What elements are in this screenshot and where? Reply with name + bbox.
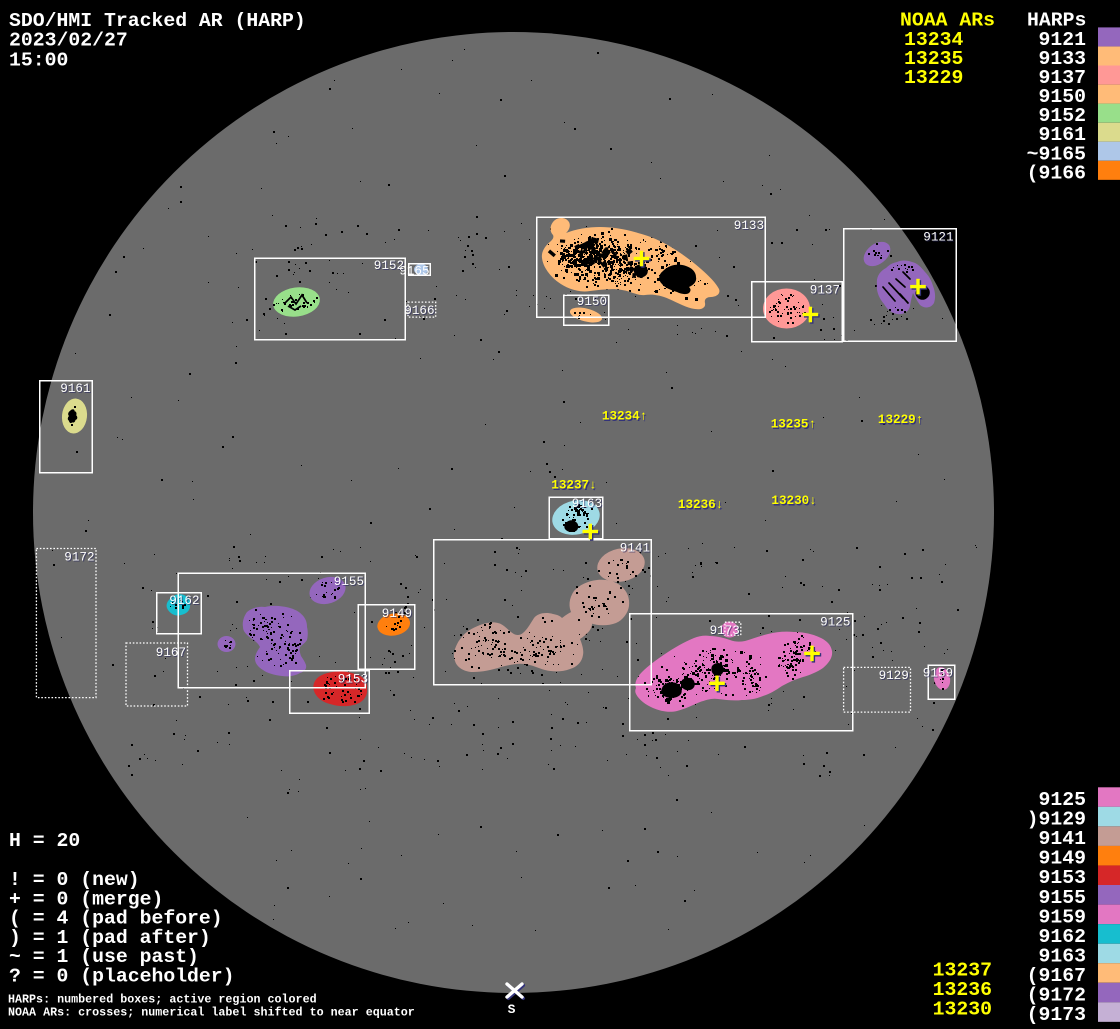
svg-text:S: S (508, 1002, 516, 1017)
svg-text:9153: 9153 (338, 673, 368, 687)
svg-text:9155: 9155 (334, 575, 364, 589)
svg-text:9162: 9162 (169, 594, 199, 608)
svg-text:13234↑: 13234↑ (602, 410, 647, 424)
svg-text:NOAA ARs: crosses; numerical l: NOAA ARs: crosses; numerical label shift… (8, 1006, 415, 1020)
svg-text:13237↓: 13237↓ (551, 479, 596, 493)
svg-text:9163: 9163 (572, 497, 602, 511)
svg-text:13230: 13230 (933, 999, 992, 1021)
svg-text:13235↑: 13235↑ (771, 418, 816, 432)
svg-text:13229↑: 13229↑ (878, 413, 923, 427)
svg-text:9173: 9173 (710, 624, 740, 638)
svg-text:13230↓: 13230↓ (771, 494, 816, 508)
svg-text:9137: 9137 (810, 284, 840, 298)
svg-text:9159: 9159 (923, 667, 953, 681)
svg-text:9125: 9125 (820, 616, 850, 630)
svg-text:9121: 9121 (923, 231, 953, 245)
svg-text:9133: 9133 (734, 219, 764, 233)
svg-text:H = 20: H = 20 (9, 830, 80, 852)
svg-text:SDO/HMI Tracked AR (HARP): SDO/HMI Tracked AR (HARP) (9, 10, 306, 32)
svg-text:9165: 9165 (399, 264, 429, 278)
svg-text:13236↓: 13236↓ (678, 498, 723, 512)
svg-text:9149: 9149 (382, 607, 412, 621)
svg-text:9172: 9172 (64, 551, 94, 565)
svg-text:9161: 9161 (60, 382, 90, 396)
svg-text:2023/02/27: 2023/02/27 (9, 30, 128, 52)
svg-text:HARPs: numbered boxes; active: HARPs: numbered boxes; active region col… (8, 993, 317, 1007)
svg-text:9141: 9141 (620, 541, 650, 555)
svg-text:9129: 9129 (879, 669, 909, 683)
svg-text:9167: 9167 (156, 646, 186, 660)
svg-text:? = 0 (placeholder): ? = 0 (placeholder) (9, 966, 235, 988)
svg-text:(9173: (9173 (1027, 1004, 1086, 1024)
svg-text:(9166: (9166 (1027, 162, 1086, 184)
svg-text:9166: 9166 (404, 304, 434, 318)
svg-text:15:00: 15:00 (9, 49, 68, 71)
svg-text:9150: 9150 (577, 295, 607, 309)
svg-text:13229: 13229 (904, 67, 963, 89)
